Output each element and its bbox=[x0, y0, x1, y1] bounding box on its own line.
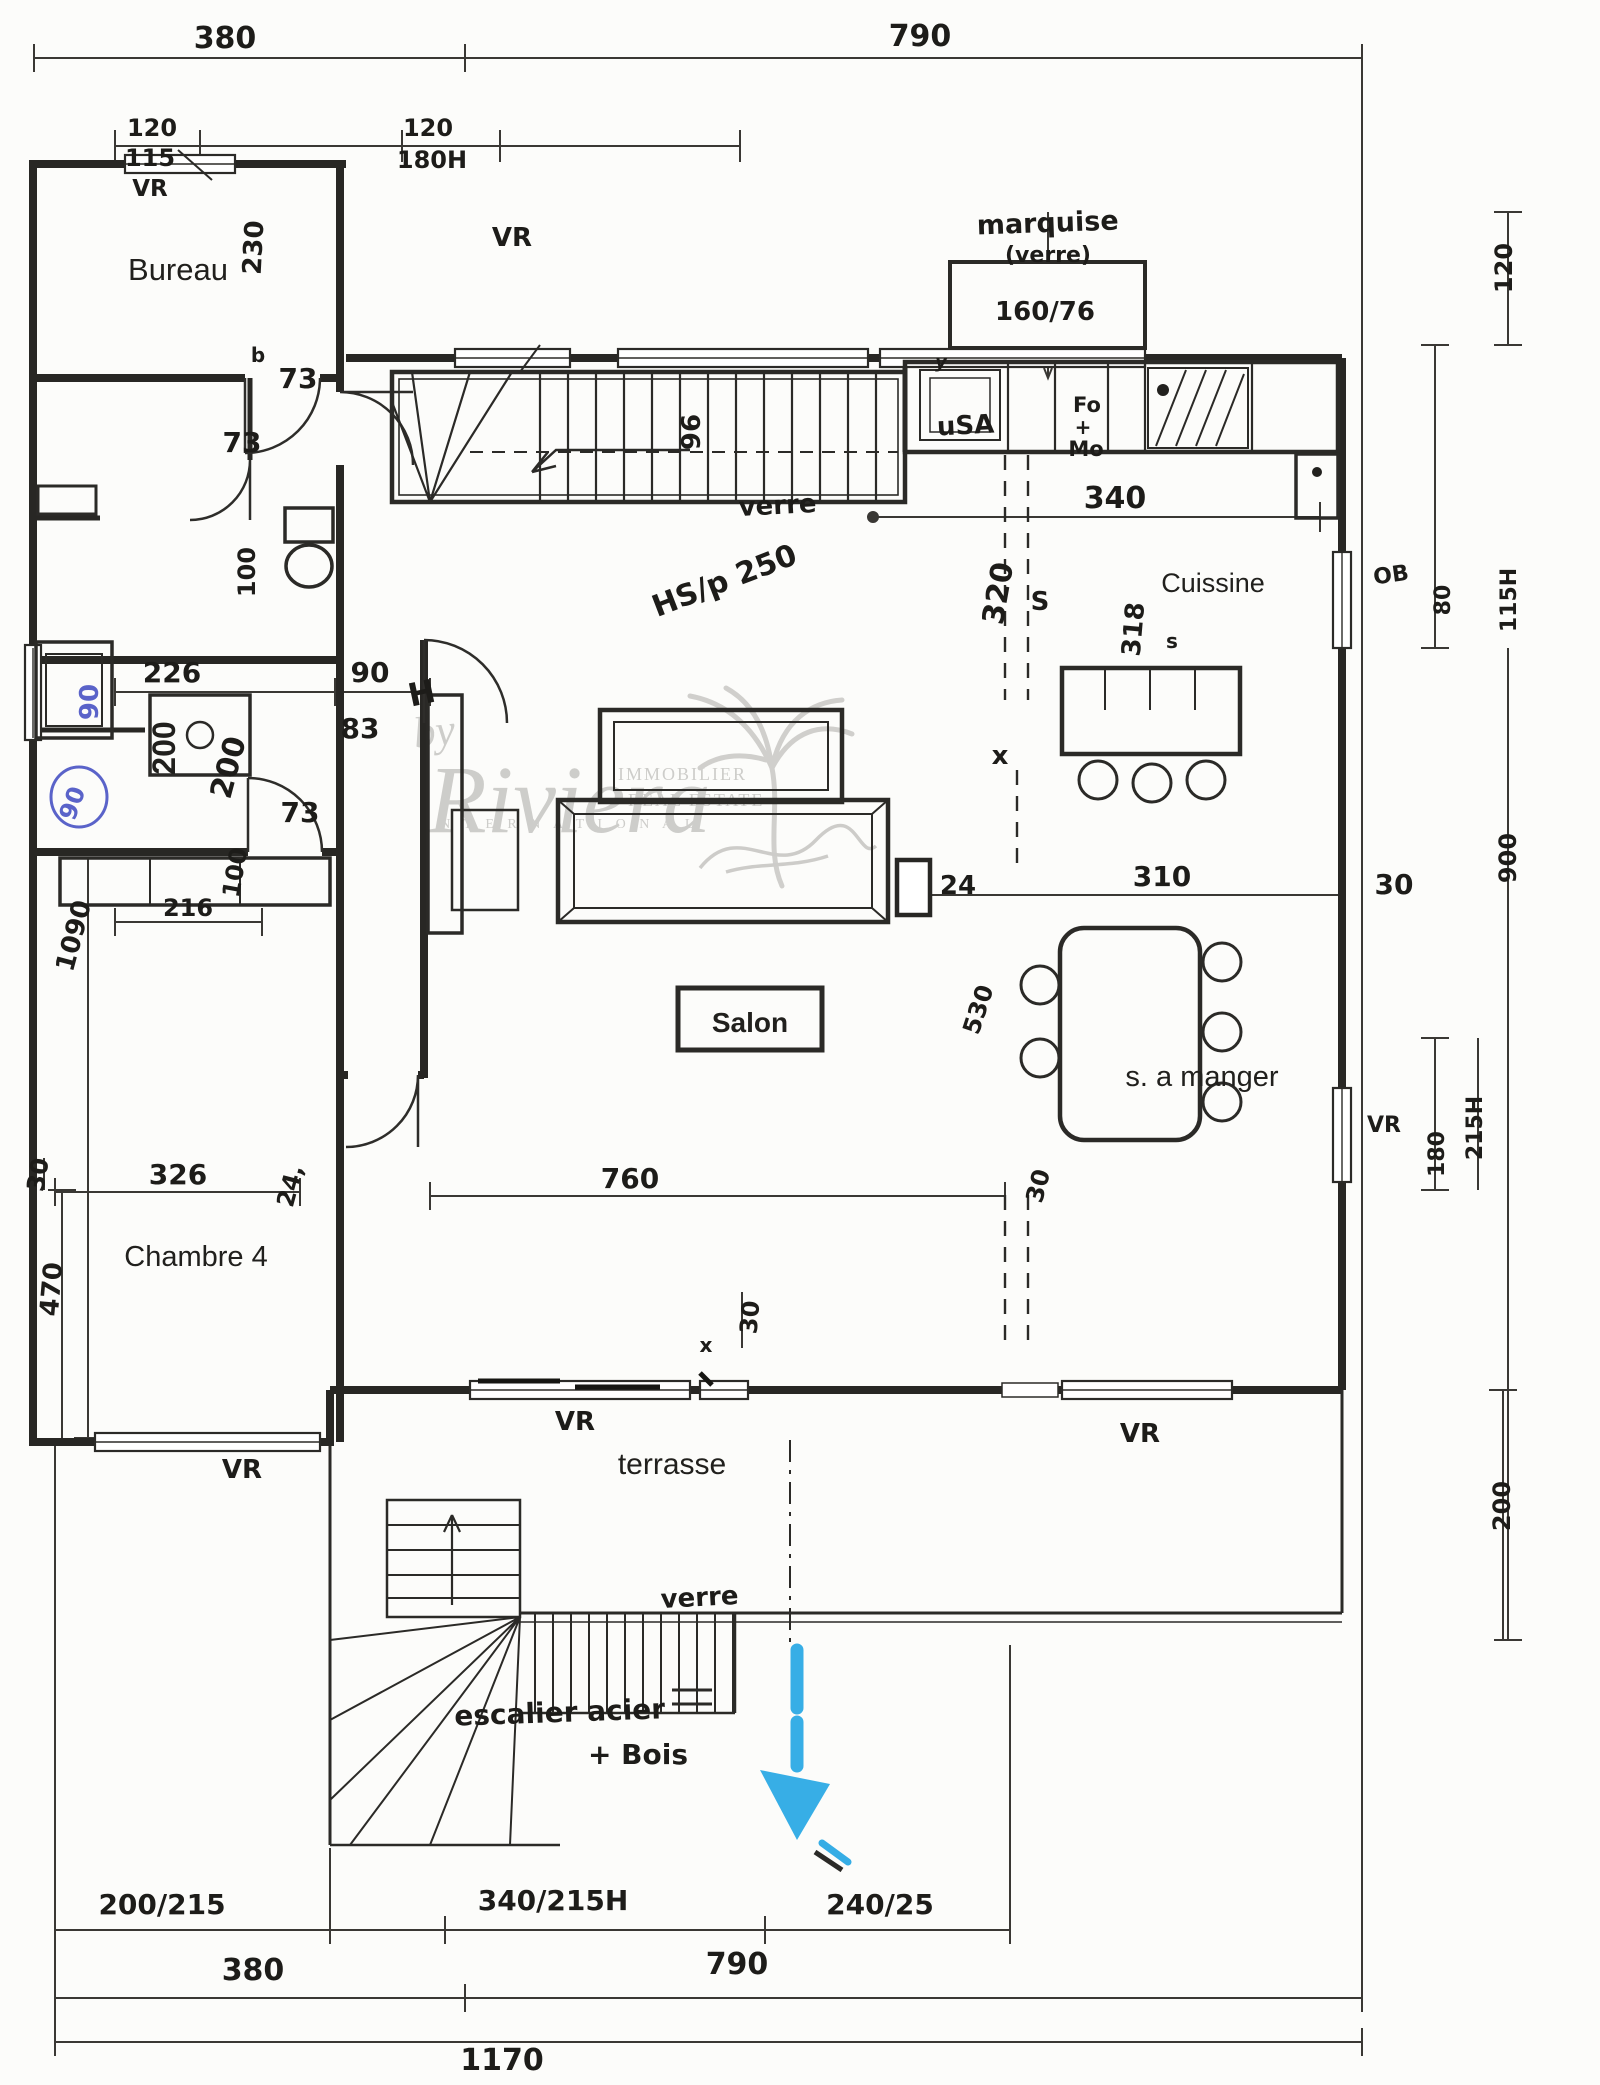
dim-73-wc-door: 73 bbox=[223, 426, 262, 459]
dim-230-bureau: 230 bbox=[238, 220, 271, 276]
label-micro: Mo bbox=[1068, 437, 1103, 461]
dim-790-top: 790 bbox=[889, 19, 952, 54]
window-slash bbox=[178, 150, 540, 372]
dim-200-printed: 200 bbox=[146, 721, 182, 774]
dim-73-bath-door: 73 bbox=[281, 796, 320, 829]
dim-30-left: 30 bbox=[21, 1156, 54, 1194]
dim-216-bath: 216 bbox=[163, 894, 213, 922]
window-label-vr-terrace-right: VR bbox=[1120, 1419, 1160, 1449]
dim-115-topleft: 115 bbox=[125, 144, 175, 172]
dim-340-kitchen: 340 bbox=[1084, 481, 1147, 516]
dining-furniture bbox=[1021, 928, 1241, 1140]
label-h-mark: H bbox=[405, 672, 439, 715]
dim-760-salon: 760 bbox=[601, 1162, 659, 1195]
dim-1090-left: 1090 bbox=[50, 897, 98, 975]
room-label-terrasse: terrasse bbox=[618, 1448, 726, 1481]
dim-96-stairs: 96 bbox=[677, 414, 707, 450]
label-ob: OB bbox=[1372, 561, 1411, 591]
dim-30-bottomwall: 30 bbox=[735, 1299, 766, 1335]
dim-790-bottom: 790 bbox=[706, 1947, 769, 1982]
room-label-cuisine: Cuissine bbox=[1161, 568, 1265, 598]
room-label-salon: Salon bbox=[712, 1007, 788, 1038]
dim-470-chambre: 470 bbox=[35, 1261, 70, 1318]
room-label-chambre4: Chambre 4 bbox=[124, 1241, 267, 1273]
label-verre-stairs: verre bbox=[738, 489, 817, 523]
dim-318-kitchen: 318 bbox=[1117, 601, 1152, 658]
dim-80-right: 80 bbox=[1431, 585, 1456, 616]
dim-320-kitchen: 320 bbox=[976, 559, 1021, 627]
agency-watermark: by Riviera IMMOBILIER REAL ESTATE I N T … bbox=[411, 688, 876, 886]
label-marquise-verre: (verre) bbox=[1005, 243, 1091, 268]
room-label-salle-a-manger: s. a manger bbox=[1125, 1061, 1278, 1093]
dim-120-topmid: 120 bbox=[403, 114, 453, 142]
dim-24-salon: 24 bbox=[940, 871, 976, 901]
dim-326-chambre: 326 bbox=[149, 1158, 207, 1191]
dim-115h-right: 115H bbox=[1497, 568, 1522, 632]
structural-post bbox=[897, 860, 930, 915]
window-label-vr-dining: VR bbox=[1367, 1113, 1401, 1138]
dim-24-chambre: 24, bbox=[271, 1162, 309, 1210]
label-x-divider: x bbox=[992, 741, 1009, 771]
dim-160-76: 160/76 bbox=[995, 297, 1095, 327]
window-label-vr-stairs: VR bbox=[492, 223, 532, 253]
dim-310-dining: 310 bbox=[1133, 860, 1191, 893]
dim-120-right: 120 bbox=[1490, 243, 1518, 293]
dim-200-right: 200 bbox=[1488, 1481, 1516, 1531]
dim-380-top: 380 bbox=[194, 21, 257, 56]
window-label-vr-topleft: VR bbox=[132, 176, 168, 202]
label-marquise: marquise bbox=[976, 206, 1119, 242]
label-y: y bbox=[935, 352, 948, 373]
dim-380-bottom: 380 bbox=[222, 1953, 285, 1988]
dim-100-wc: 100 bbox=[233, 547, 261, 597]
dim-30-dining-right: 30 bbox=[1375, 868, 1414, 901]
blue-marker-arrow bbox=[760, 1650, 848, 1862]
interior-stairs bbox=[392, 372, 905, 502]
label-hsp250: HS/p 250 bbox=[647, 538, 802, 625]
dim-180h-topmid: 180H bbox=[397, 146, 467, 174]
dim-240-25: 240/25 bbox=[826, 1888, 934, 1921]
label-verre-terrace: verre bbox=[660, 1581, 739, 1615]
floorplan-sheet: by Riviera IMMOBILIER REAL ESTATE I N T … bbox=[0, 0, 1600, 2085]
dim-900-right: 900 bbox=[1494, 833, 1522, 883]
signature-squiggle bbox=[700, 825, 876, 872]
dim-530-divider: 530 bbox=[957, 981, 999, 1037]
dim-30-mid: 30 bbox=[1020, 1166, 1056, 1206]
dim-226-w: 226 bbox=[143, 656, 201, 689]
dim-73-bureau-door: 73 bbox=[279, 362, 318, 395]
dim-215h-right: 215H bbox=[1463, 1096, 1488, 1160]
label-four: Fo bbox=[1073, 393, 1101, 417]
label-s-upper: S bbox=[1031, 587, 1050, 617]
terrace-exterior-stairs bbox=[330, 1390, 1342, 1870]
dim-90-blue-a: 90 bbox=[75, 684, 105, 720]
dim-340-215h: 340/215H bbox=[478, 1884, 629, 1917]
window-label-vr-terrace-left: VR bbox=[555, 1407, 595, 1437]
room-label-bureau: Bureau bbox=[128, 252, 228, 287]
dim-90-hall: 90 bbox=[351, 656, 390, 689]
label-escalier-1: escalier acier bbox=[454, 1692, 666, 1732]
dim-200-215: 200/215 bbox=[98, 1888, 225, 1921]
label-plus: + bbox=[1075, 415, 1092, 439]
label-escalier-2: + Bois bbox=[588, 1738, 688, 1771]
dim-120-topleft: 120 bbox=[127, 114, 177, 142]
watermark-line1: IMMOBILIER bbox=[618, 764, 747, 784]
dim-1170-bottom: 1170 bbox=[460, 2043, 544, 2078]
label-s-lower: s bbox=[1166, 629, 1178, 653]
label-b: b bbox=[251, 343, 265, 367]
label-x-bottomwall: x bbox=[700, 1333, 713, 1357]
dim-180-right: 180 bbox=[1425, 1131, 1450, 1177]
dim-83-door: 83 bbox=[341, 712, 380, 745]
label-usa: uSA bbox=[936, 410, 995, 443]
window-label-vr-chambre: VR bbox=[222, 1455, 262, 1485]
